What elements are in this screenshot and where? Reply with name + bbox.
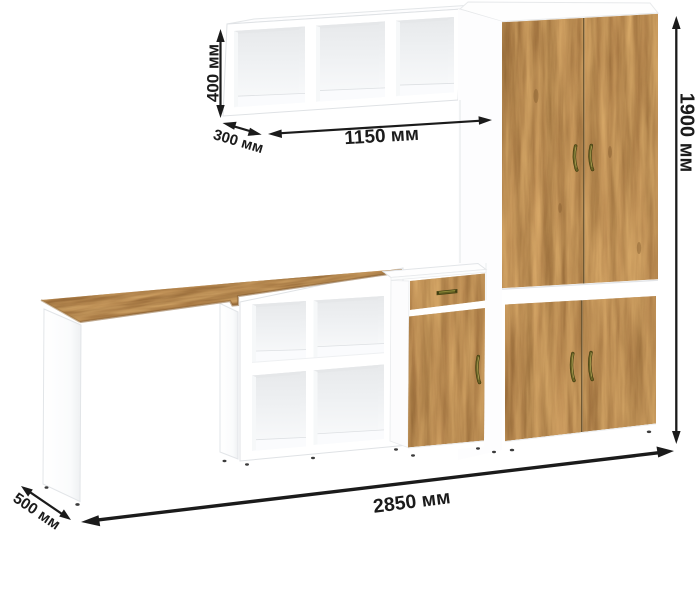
svg-text:1900 мм: 1900 мм [676, 93, 698, 173]
svg-text:400 мм: 400 мм [204, 44, 223, 102]
